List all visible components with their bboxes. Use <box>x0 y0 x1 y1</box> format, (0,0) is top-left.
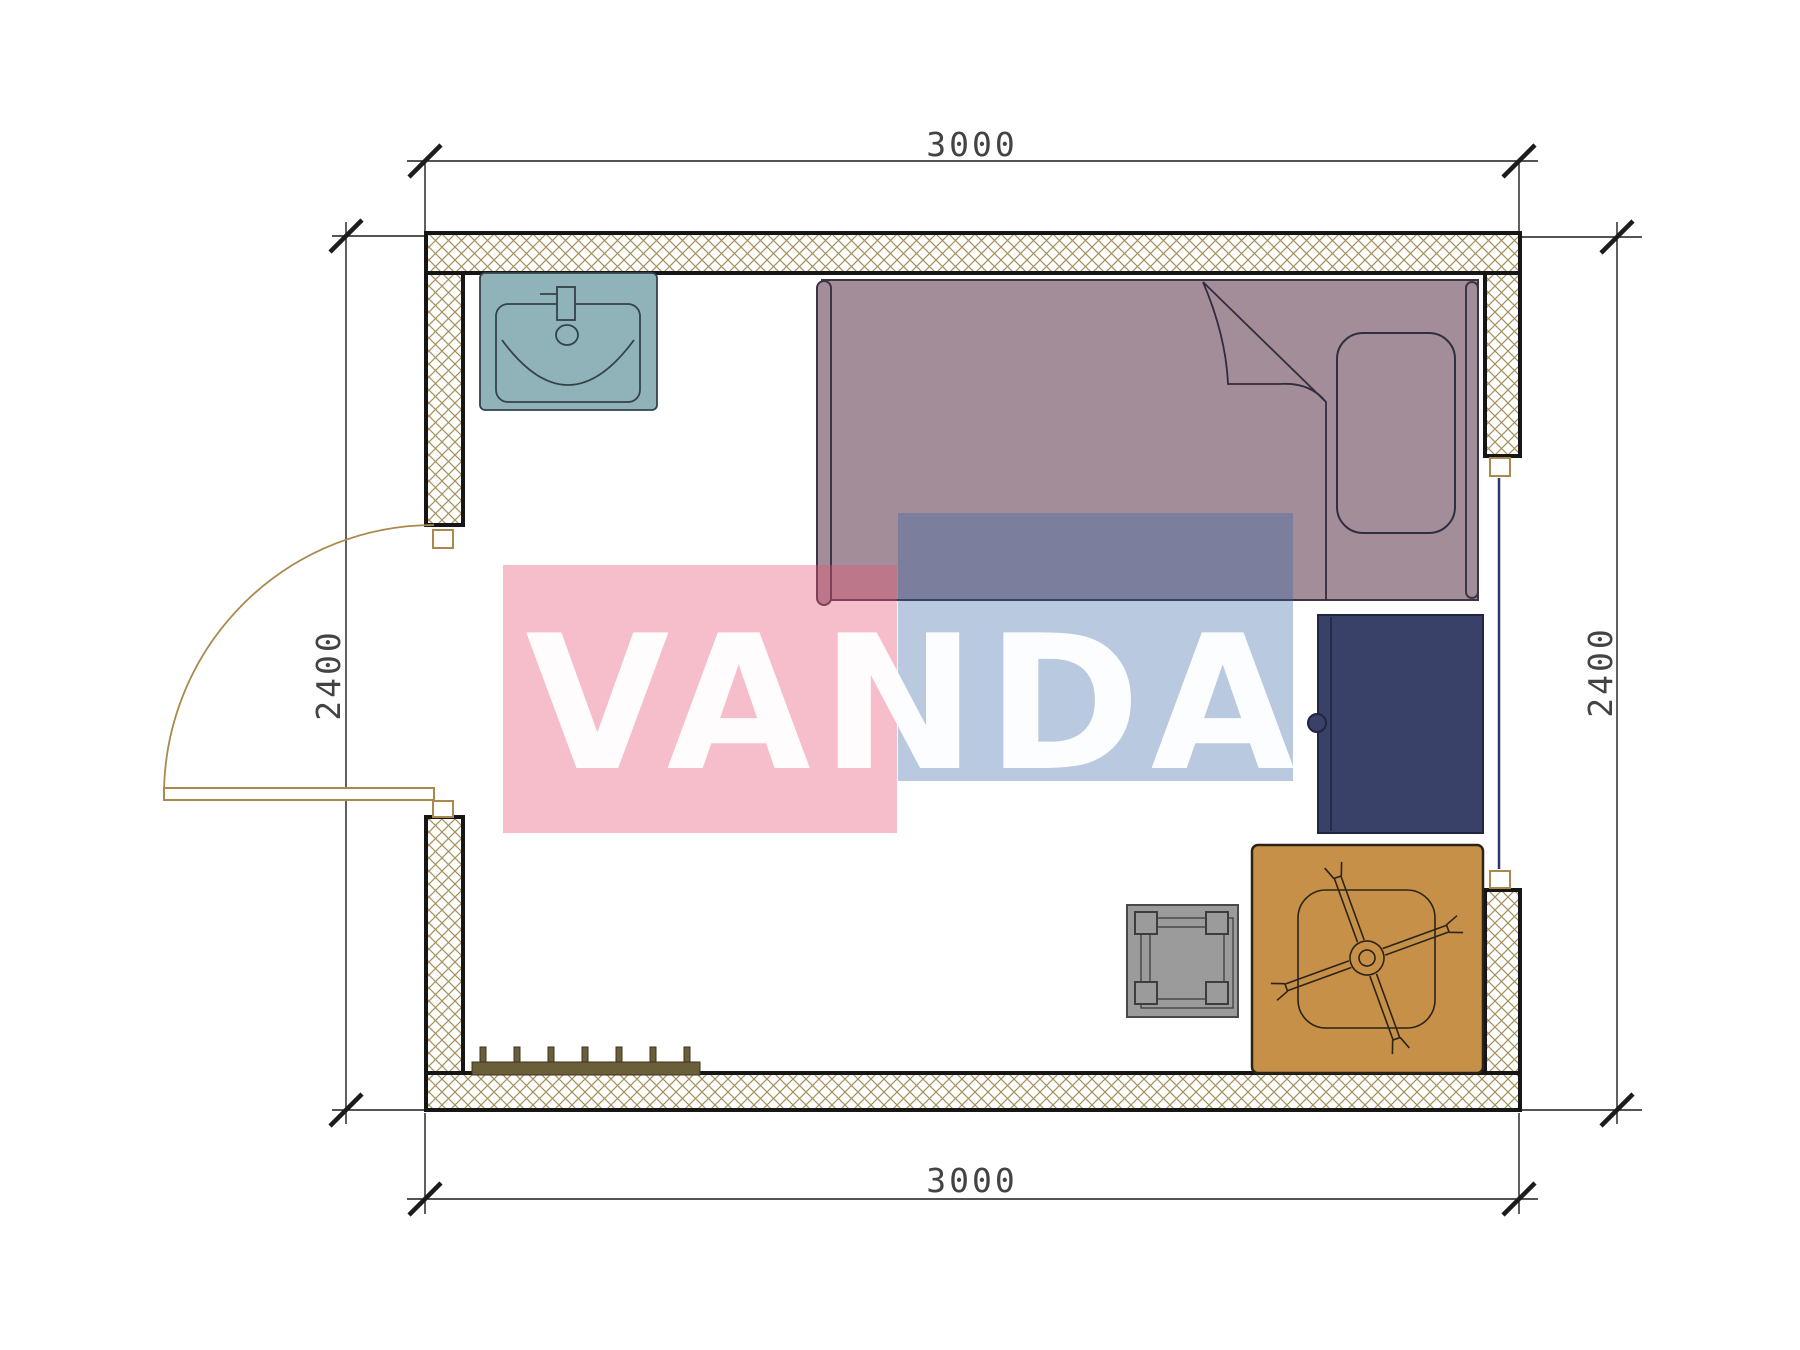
coat-rack-peg <box>548 1047 554 1062</box>
stool-leg <box>1206 982 1228 1004</box>
table-top <box>1252 845 1483 1073</box>
wall-right-lower <box>1485 890 1520 1073</box>
window-jamb-bottom <box>1490 871 1510 888</box>
coat-rack-peg <box>650 1047 656 1062</box>
watermark: VANDA <box>503 513 1305 833</box>
coat-rack-peg <box>480 1047 486 1062</box>
coat-rack-peg <box>582 1047 588 1062</box>
coat-rack-peg <box>684 1047 690 1062</box>
wardrobe <box>1308 615 1483 833</box>
faucet-icon <box>557 287 575 320</box>
dimension-right-label: 2400 <box>1581 626 1620 717</box>
dimension-left-label: 2400 <box>309 629 348 720</box>
coat-rack-peg <box>514 1047 520 1062</box>
stool <box>1127 905 1238 1017</box>
dimension-left: 2400 <box>309 220 424 1126</box>
dimension-bottom-label: 3000 <box>926 1161 1017 1200</box>
stool-leg <box>1135 912 1157 934</box>
dimension-top-label: 3000 <box>926 125 1017 164</box>
sink <box>480 273 657 410</box>
bed-headboard <box>1466 282 1478 598</box>
dimension-top: 3000 <box>407 125 1538 231</box>
window <box>1490 458 1510 888</box>
wall-top <box>426 233 1520 273</box>
wall-left-upper <box>426 273 463 525</box>
table <box>1240 831 1494 1085</box>
wall-left-lower <box>426 817 463 1073</box>
pillow <box>1337 333 1455 533</box>
floor-plan-drawing: 3000 3000 2400 2400 <box>0 0 1800 1350</box>
door-leaf <box>164 788 434 800</box>
door-swing-arc <box>164 525 434 795</box>
wall-bottom <box>426 1073 1520 1110</box>
stool-leg <box>1135 982 1157 1004</box>
dimension-bottom: 3000 <box>407 1113 1538 1215</box>
floor-plan-canvas: 3000 3000 2400 2400 <box>0 0 1800 1350</box>
watermark-text: VANDA <box>525 595 1304 812</box>
wall-right-upper <box>1485 273 1520 456</box>
door-jamb-top <box>433 530 453 548</box>
door-jamb-bottom <box>433 801 453 817</box>
coat-rack-bar <box>472 1062 700 1075</box>
wardrobe-knob <box>1308 714 1326 732</box>
window-jamb-top <box>1490 458 1510 476</box>
bed-footboard <box>817 281 831 605</box>
coat-rack-peg <box>616 1047 622 1062</box>
wardrobe-body <box>1318 615 1483 833</box>
stool-leg <box>1206 912 1228 934</box>
coat-rack <box>472 1047 700 1075</box>
dimension-right: 2400 <box>1522 221 1642 1126</box>
